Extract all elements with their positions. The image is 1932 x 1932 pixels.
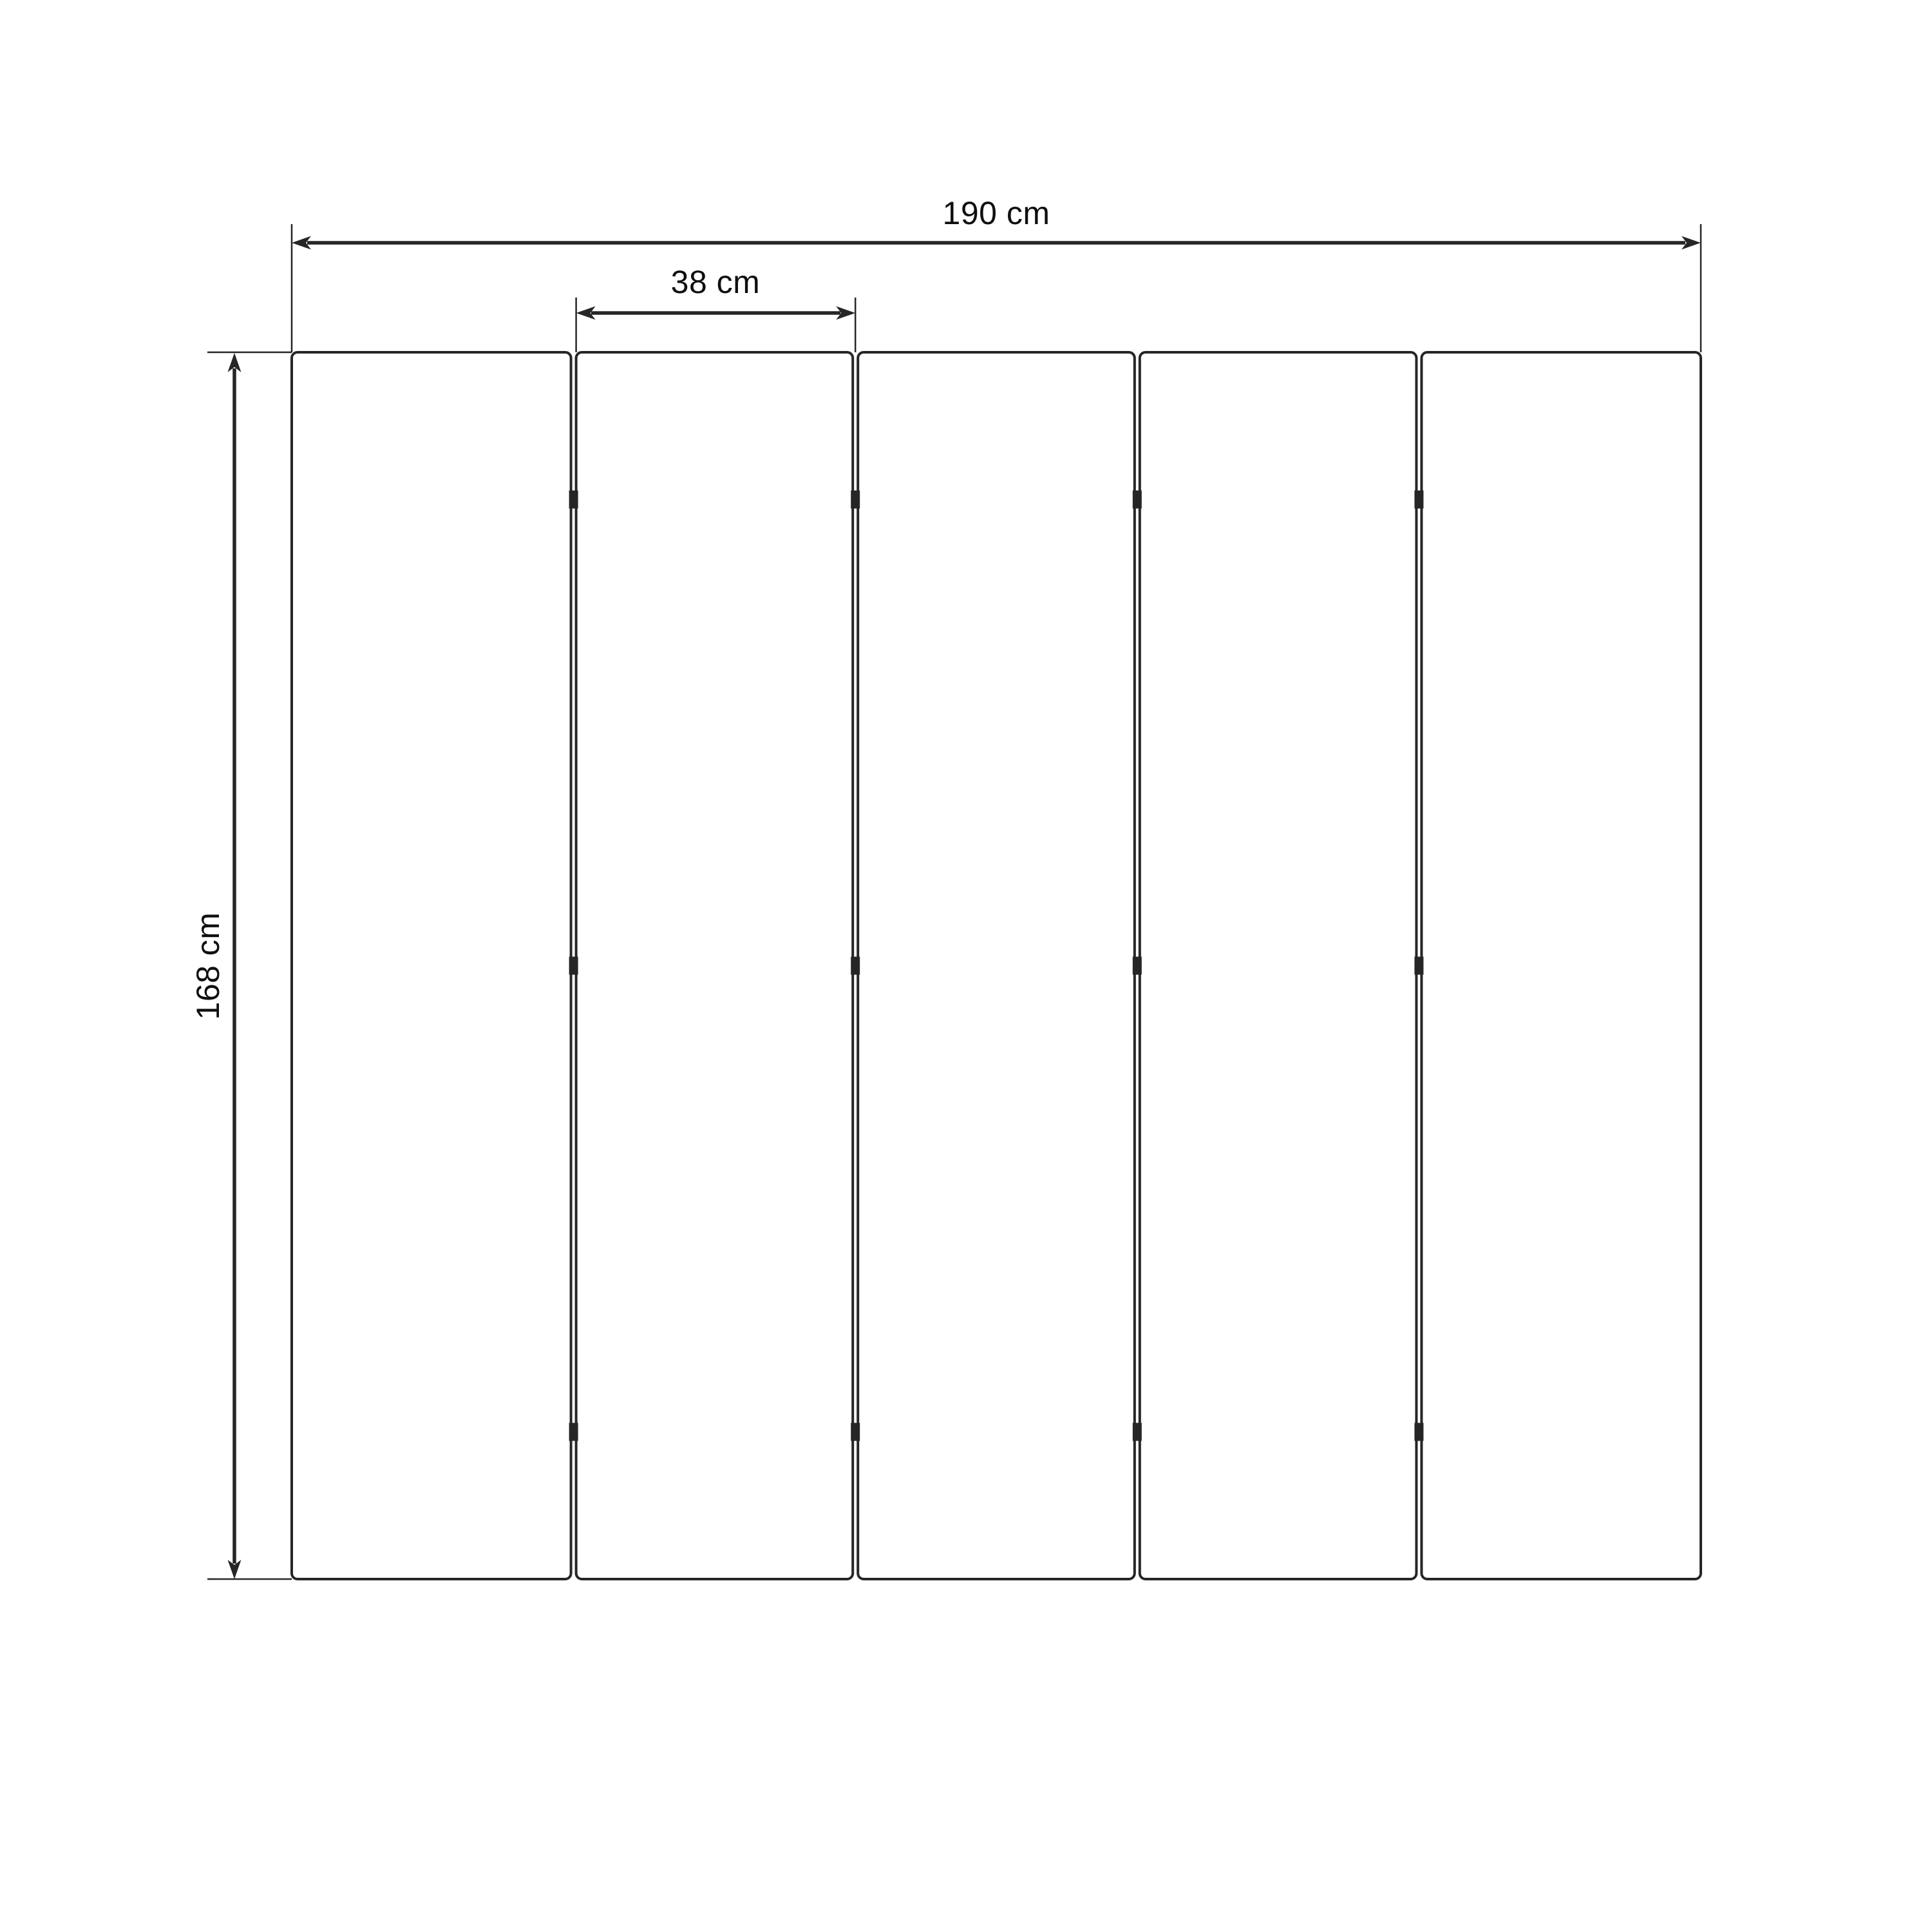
panel-3 [858,352,1135,1579]
hinge [851,957,860,975]
hinge [1414,1423,1423,1441]
hinge [1133,1423,1142,1441]
panel-1 [292,352,571,1579]
hinge [851,491,860,509]
hinge [851,1423,860,1441]
hinge [1414,491,1423,509]
hinge [1414,957,1423,975]
hinge [1133,491,1142,509]
panel-2 [576,352,853,1579]
folding-screen-dimension-diagram: 190 cm 38 cm 168 cm [0,0,1932,1932]
diagram-canvas: 190 cm 38 cm 168 cm [0,0,1932,1932]
panel-width-label: 38 cm [671,264,761,300]
panel-5 [1421,352,1701,1579]
height-label: 168 cm [190,913,226,1020]
hinge [1133,957,1142,975]
hinge [569,1423,578,1441]
panels-group [292,352,1701,1579]
panel-4 [1140,352,1417,1579]
hinge [569,957,578,975]
total-width-label: 190 cm [943,195,1050,231]
hinge [569,491,578,509]
